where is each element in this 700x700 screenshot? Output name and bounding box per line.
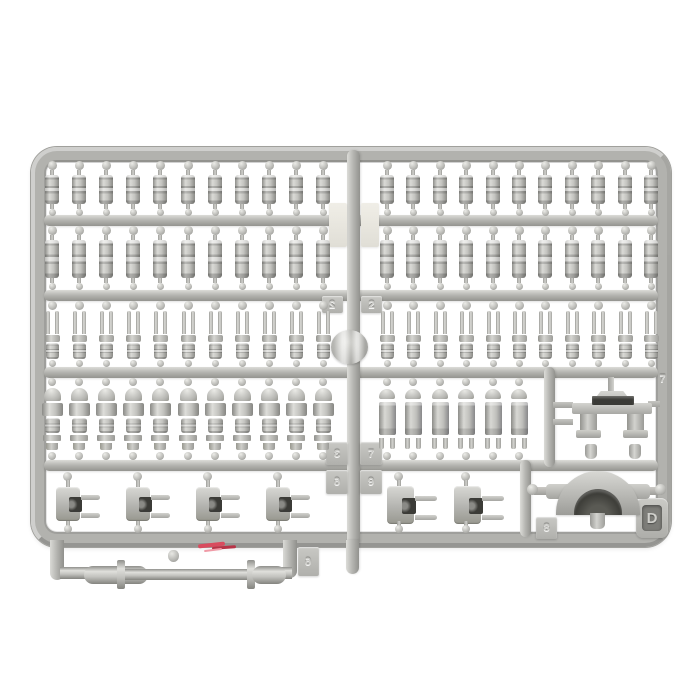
small-pin-part — [152, 226, 168, 290]
fork-pin-part — [315, 301, 331, 367]
small-pin-part — [261, 226, 277, 290]
small-pin-part — [617, 161, 633, 216]
small-pin-part — [234, 161, 250, 216]
fork-pin-part — [485, 301, 501, 367]
embossed-digit: 6 — [334, 476, 340, 488]
embossed-digit: 6 — [305, 556, 311, 568]
bracket-stem-left-1 — [553, 402, 573, 408]
clevis-part — [56, 472, 106, 532]
uclamp-bottom-nub — [590, 513, 605, 529]
small-pin-part — [564, 226, 580, 290]
fork-pin-part — [564, 301, 580, 367]
damper-part — [149, 378, 171, 460]
small-pin-part — [98, 226, 114, 290]
damper-part — [68, 378, 90, 460]
number-tab-cross-br: 9 — [360, 470, 382, 494]
divider-section7 — [544, 367, 555, 467]
small-pin-part — [458, 161, 474, 216]
small-pin-part — [125, 226, 141, 290]
damper-part — [456, 378, 476, 460]
damper-part — [41, 378, 63, 460]
number-tab-8: 8 — [536, 517, 557, 539]
blank-tab-right — [361, 203, 379, 247]
blank-tab-left — [329, 203, 347, 247]
small-pin-part — [405, 226, 421, 290]
bracket-stem-top — [608, 377, 614, 392]
damper-part — [177, 378, 199, 460]
fork-pin-part — [405, 301, 421, 367]
fork-pin-part — [180, 301, 196, 367]
fork-pin-part — [125, 301, 141, 367]
embossed-digit: 3 — [334, 448, 340, 460]
small-pin-part — [152, 161, 168, 216]
embossed-digit: 2 — [368, 299, 374, 311]
center-runner-stub — [346, 540, 359, 574]
small-pin-part — [71, 161, 87, 216]
fork-pin-part — [617, 301, 633, 367]
fork-pin-part — [234, 301, 250, 367]
damper-part — [122, 378, 144, 460]
small-pin-part — [537, 226, 553, 290]
clevis-part — [266, 472, 316, 532]
fork-pin-part — [288, 301, 304, 367]
embossed-digit: 7 — [659, 373, 665, 385]
fork-pin-part — [71, 301, 87, 367]
small-pin-part — [379, 226, 395, 290]
fork-pin-part — [98, 301, 114, 367]
damper-part — [95, 378, 117, 460]
small-pin-part — [234, 226, 250, 290]
sprue-letter: D — [642, 505, 662, 531]
fork-pin-part — [44, 301, 60, 367]
fork-pin-part — [590, 301, 606, 367]
sprue-letter-plate: D — [636, 498, 668, 538]
rod-sleeve-right — [252, 566, 286, 584]
small-pin-part — [458, 226, 474, 290]
divider-section8 — [520, 460, 531, 537]
small-pin-part — [617, 226, 633, 290]
small-pin-part — [432, 161, 448, 216]
damper-part — [204, 378, 226, 460]
rod-shaft — [125, 569, 251, 580]
small-pin-part — [315, 161, 331, 216]
small-pin-part — [180, 161, 196, 216]
fork-pin-part — [207, 301, 223, 367]
clevis-part — [387, 472, 441, 532]
bracket-pin-right — [629, 444, 641, 459]
small-pin-part — [44, 161, 60, 216]
clevis-part — [126, 472, 176, 532]
clevis-part — [454, 472, 508, 532]
small-pin-part — [405, 161, 421, 216]
fork-pin-part — [511, 301, 527, 367]
number-tab-cross-bl: 6 — [326, 470, 348, 494]
damper-part — [377, 378, 397, 460]
small-pin-part — [44, 226, 60, 290]
small-pin-part — [643, 161, 659, 216]
sprue-photo: 2 2 3 7 6 9 7 8 6 D — [0, 0, 700, 700]
small-pin-part — [288, 161, 304, 216]
small-pin-part — [511, 226, 527, 290]
small-pin-part — [315, 226, 331, 290]
damper-part — [231, 378, 253, 460]
bracket-foot-right — [623, 430, 648, 438]
small-pin-part — [98, 161, 114, 216]
damper-part — [258, 378, 280, 460]
clevis-part — [196, 472, 246, 532]
small-pin-part — [207, 226, 223, 290]
fork-pin-part — [432, 301, 448, 367]
bracket-slot — [592, 396, 634, 405]
embossed-digit: 9 — [368, 476, 374, 488]
damper-part — [312, 378, 334, 460]
small-pin-part — [71, 226, 87, 290]
small-pin-part — [485, 226, 501, 290]
fork-pin-part — [458, 301, 474, 367]
damper-part — [430, 378, 450, 460]
fork-pin-part — [643, 301, 659, 367]
damper-part — [285, 378, 307, 460]
uclamp-ball-right — [655, 484, 666, 495]
bracket-foot-left — [576, 430, 601, 438]
bracket-stem-left-2 — [553, 419, 573, 425]
small-pin-part — [537, 161, 553, 216]
embossed-digit: 7 — [368, 448, 374, 460]
small-pin-part — [590, 226, 606, 290]
fork-pin-part — [537, 301, 553, 367]
small-pin-part — [261, 161, 277, 216]
small-pin-part — [432, 226, 448, 290]
damper-part — [509, 378, 529, 460]
embossed-digit: 8 — [543, 522, 549, 534]
small-pin-part — [564, 161, 580, 216]
gate-nub — [168, 550, 179, 562]
small-pin-part — [288, 226, 304, 290]
fork-pin-part — [261, 301, 277, 367]
small-pin-part — [125, 161, 141, 216]
red-paint-mark — [204, 548, 222, 552]
number-tab-6: 6 — [298, 547, 319, 576]
bracket-pin-left — [585, 444, 597, 459]
injection-gate-boss — [331, 330, 368, 364]
number-emboss-7: 7 — [654, 368, 671, 389]
rod-flange-1 — [117, 560, 125, 589]
uclamp-ball-left — [527, 484, 538, 495]
damper-part — [483, 378, 503, 460]
small-pin-part — [485, 161, 501, 216]
small-pin-part — [590, 161, 606, 216]
small-pin-part — [379, 161, 395, 216]
small-pin-part — [180, 226, 196, 290]
damper-part — [403, 378, 423, 460]
fork-pin-part — [152, 301, 168, 367]
fork-pin-part — [379, 301, 395, 367]
small-pin-part — [511, 161, 527, 216]
small-pin-part — [643, 226, 659, 290]
small-pin-part — [207, 161, 223, 216]
